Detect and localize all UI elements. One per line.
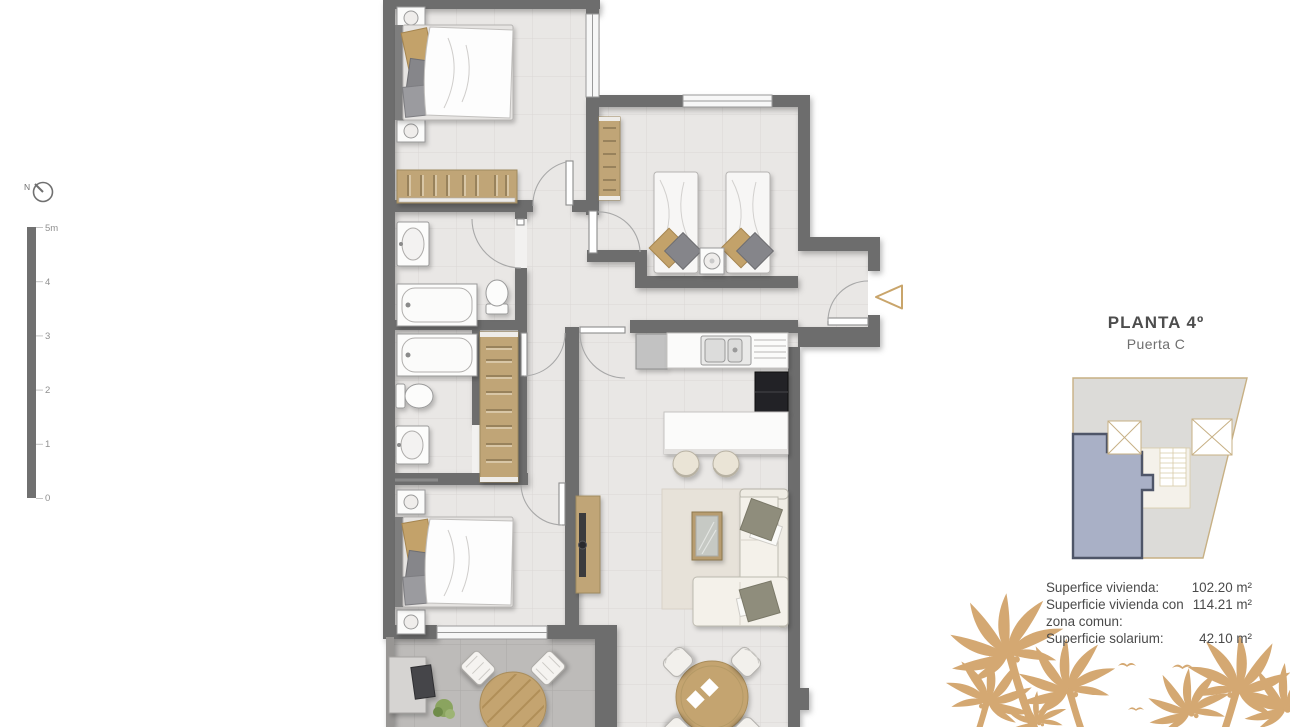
window-bedroom1 — [586, 14, 599, 97]
key-plan-lightwell — [1108, 421, 1141, 454]
surface-areas-table: Superfice vivienda: 102.20 m² Superficie… — [1046, 579, 1252, 647]
dining-table — [676, 661, 748, 727]
wardrobe — [397, 170, 517, 203]
page-subtitle: Puerta C — [1020, 336, 1290, 352]
area-value: 102.20 m² — [1192, 579, 1252, 596]
bedroom1 — [395, 7, 517, 203]
scale-bar: 5m 4 3 2 1 0 — [27, 223, 58, 504]
area-label: Superficie solarium: — [1046, 630, 1198, 647]
bathtub — [397, 284, 477, 326]
wardrobe — [599, 117, 620, 200]
sink — [396, 426, 429, 464]
stove — [755, 372, 788, 412]
area-label: Superficie vivienda con zona comun: — [1046, 596, 1193, 630]
scale-label: 3 — [45, 331, 50, 342]
area-label: Superfice vivienda: — [1046, 579, 1192, 596]
single-bed — [649, 172, 701, 273]
area-row: Superficie vivienda con zona comun: 114.… — [1046, 596, 1252, 630]
double-bed — [395, 25, 513, 120]
bar-stool — [713, 451, 739, 477]
double-bed — [395, 517, 513, 607]
info-panel: PLANTA 4º Puerta C — [1020, 313, 1290, 352]
key-plan-lightwell — [1192, 419, 1232, 455]
door-bathroom2-opening — [472, 425, 480, 473]
sink — [397, 222, 429, 266]
window-bedroom3-terrace — [437, 626, 547, 639]
compass-label: N — [24, 182, 30, 192]
coffee-table — [692, 512, 722, 560]
entry-arrow-icon — [876, 286, 902, 309]
bathtub — [397, 334, 477, 376]
window-bedroom2 — [683, 95, 772, 107]
island — [664, 412, 788, 454]
corridor-closet — [480, 332, 518, 482]
key-plan-stairs — [1160, 448, 1186, 486]
area-row: Superfice vivienda: 102.20 m² — [1046, 579, 1252, 596]
floor-entry-hall — [798, 251, 868, 327]
fridge — [636, 334, 667, 369]
scale-label: 4 — [45, 277, 50, 288]
toilet — [486, 280, 508, 314]
page-title: PLANTA 4º — [1020, 313, 1290, 333]
scale-label: 1 — [45, 439, 50, 450]
tv-console — [576, 496, 600, 593]
area-row: Superficie solarium: 42.10 m² — [1046, 630, 1252, 647]
area-value: 114.21 m² — [1193, 596, 1252, 613]
nightstand — [700, 248, 724, 274]
apartment-floor-plan — [383, 0, 902, 727]
scale-label: 0 — [45, 493, 50, 504]
single-bed — [721, 172, 773, 273]
scale-label: 2 — [45, 385, 50, 396]
bar-stool — [673, 451, 699, 477]
kitchen-sink — [701, 336, 751, 365]
area-value: 42.10 m² — [1199, 630, 1252, 647]
scale-label: 5m — [45, 223, 58, 234]
north-compass-icon: N — [24, 182, 53, 202]
toilet — [396, 384, 433, 408]
floor-plan-sheet: N 5m 4 3 2 1 0 — [0, 0, 1290, 727]
counter — [667, 333, 788, 368]
key-plan — [1073, 378, 1247, 558]
